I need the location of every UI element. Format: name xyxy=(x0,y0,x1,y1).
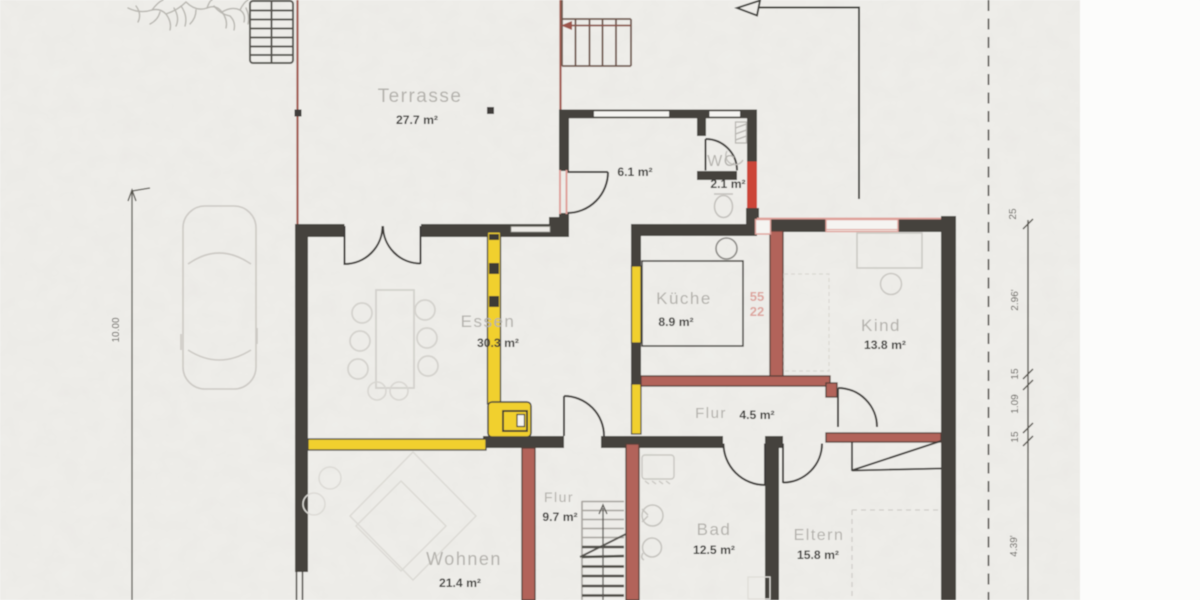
svg-text:WC: WC xyxy=(707,153,737,170)
svg-text:Flur: Flur xyxy=(695,405,727,422)
svg-text:13.8 m²: 13.8 m² xyxy=(864,338,906,352)
svg-text:55: 55 xyxy=(750,289,764,304)
svg-text:Flur: Flur xyxy=(544,489,574,505)
svg-text:4.39': 4.39' xyxy=(1009,535,1020,556)
svg-text:4.5 m²: 4.5 m² xyxy=(739,408,774,422)
svg-text:Kind: Kind xyxy=(861,316,901,335)
svg-text:6.1 m²: 6.1 m² xyxy=(617,165,652,179)
svg-text:Wohnen: Wohnen xyxy=(426,549,502,569)
svg-text:2.96': 2.96' xyxy=(1010,289,1021,310)
svg-text:Küche: Küche xyxy=(656,289,712,308)
svg-text:22: 22 xyxy=(750,304,764,319)
svg-text:15: 15 xyxy=(1010,368,1021,380)
svg-text:1.09: 1.09 xyxy=(1010,394,1021,414)
svg-text:9.7 m²: 9.7 m² xyxy=(542,510,577,524)
svg-text:15: 15 xyxy=(1010,431,1021,443)
svg-text:21.4 m²: 21.4 m² xyxy=(439,576,481,590)
svg-text:10.00: 10.00 xyxy=(111,317,122,342)
svg-text:27.7 m²: 27.7 m² xyxy=(396,113,438,127)
svg-text:2.1 m²: 2.1 m² xyxy=(710,177,745,191)
svg-text:30.3 m²: 30.3 m² xyxy=(477,336,519,350)
svg-text:Essen: Essen xyxy=(461,312,516,331)
svg-text:Eltern: Eltern xyxy=(794,527,845,544)
svg-text:Terrasse: Terrasse xyxy=(378,86,463,107)
svg-text:8.9 m²: 8.9 m² xyxy=(658,315,693,329)
svg-text:25: 25 xyxy=(1008,208,1019,220)
svg-text:Bad: Bad xyxy=(697,520,732,539)
svg-text:15.8 m²: 15.8 m² xyxy=(797,548,839,562)
svg-text:12.5 m²: 12.5 m² xyxy=(693,543,735,557)
